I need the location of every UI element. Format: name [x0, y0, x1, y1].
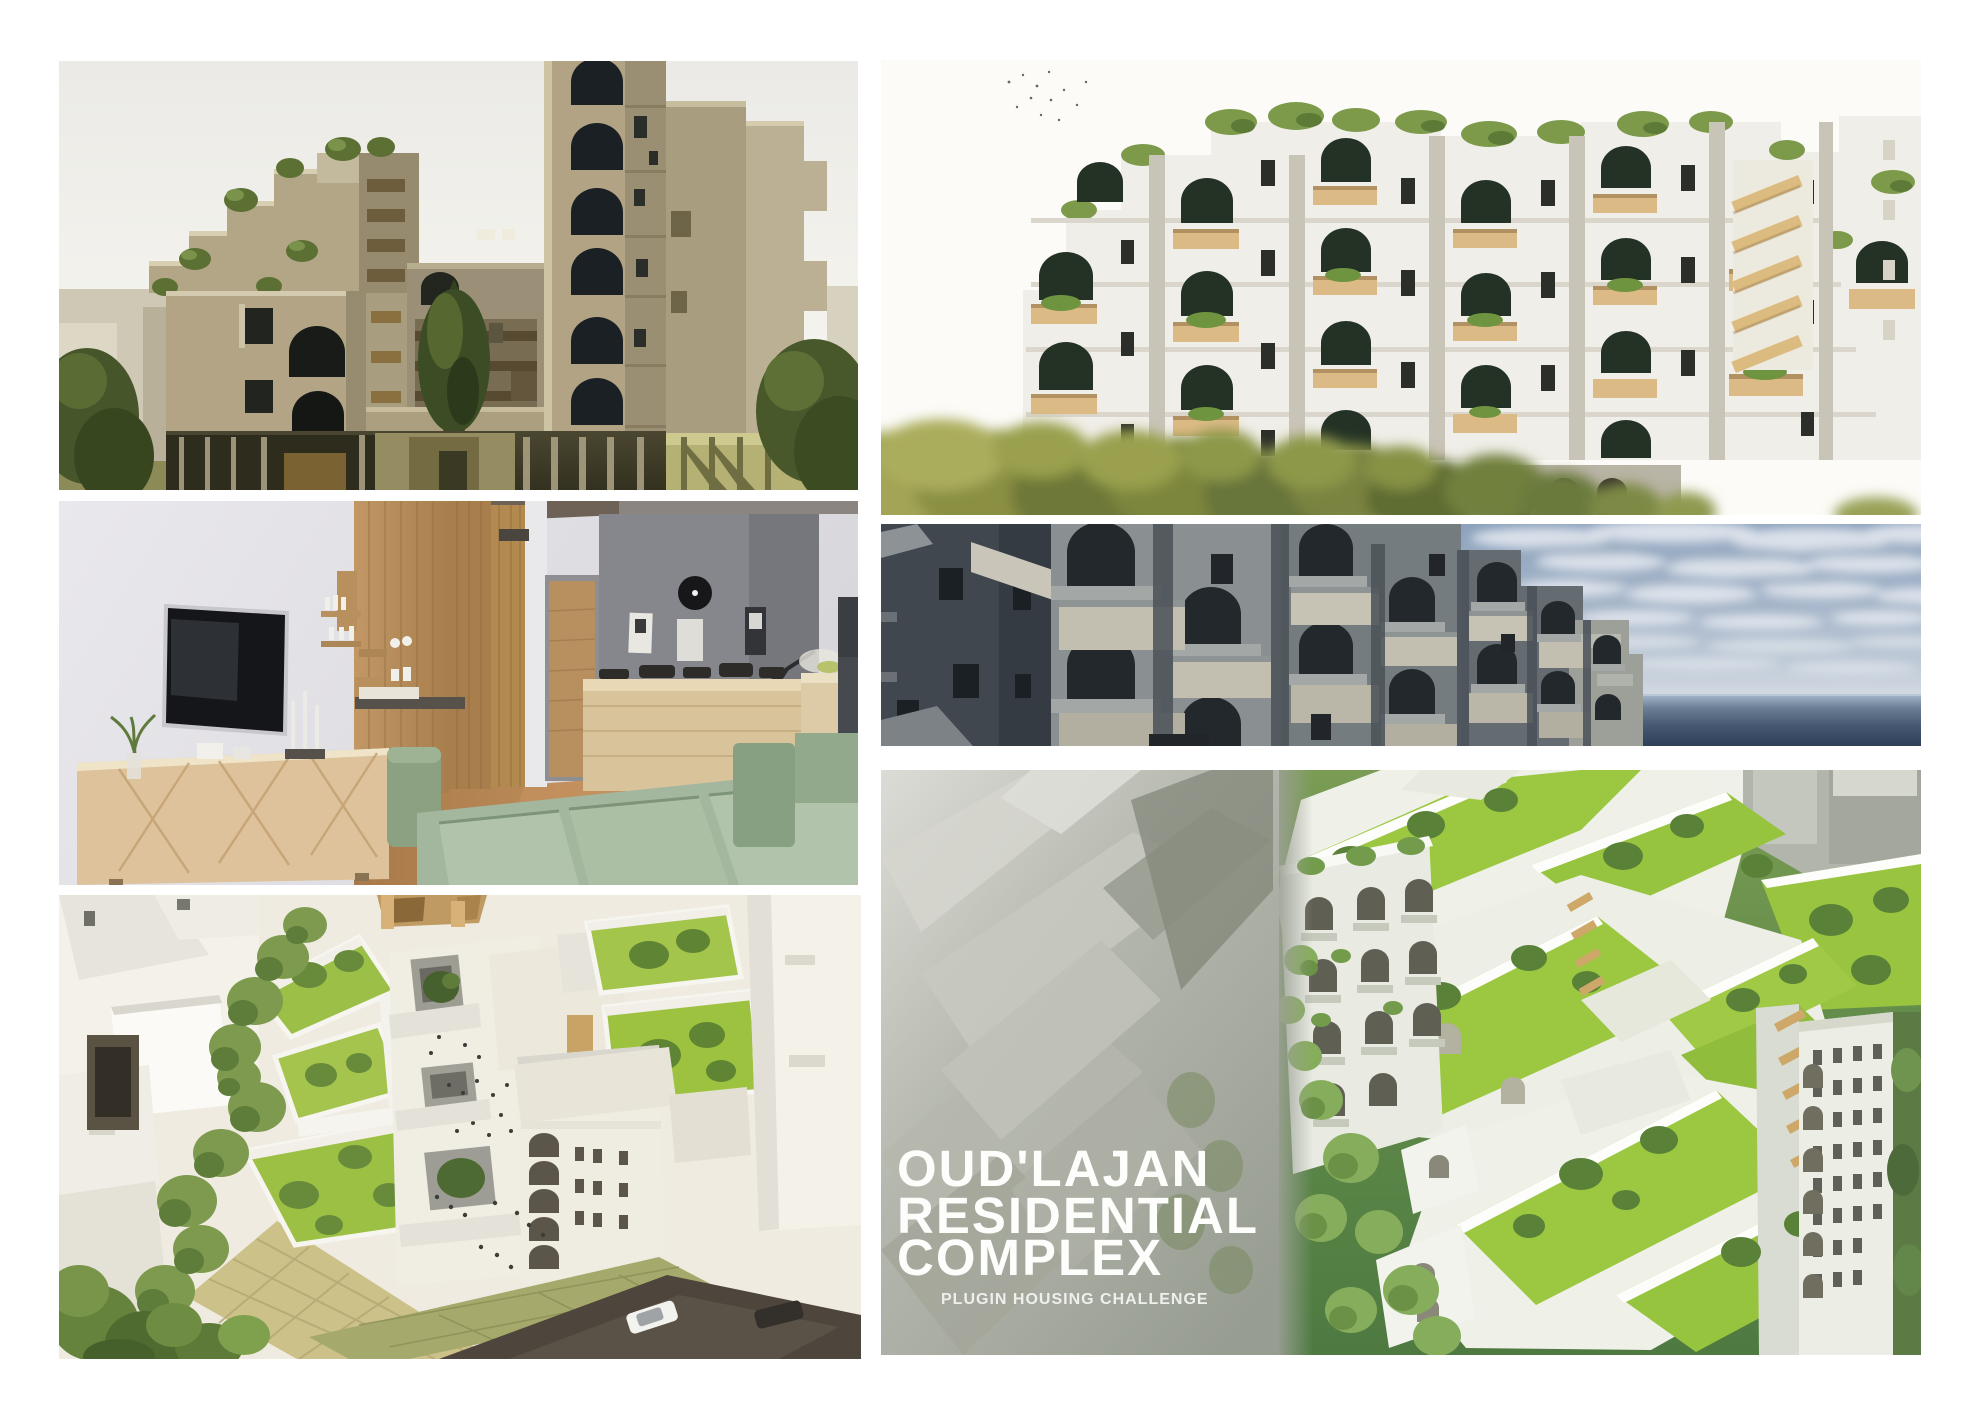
svg-text:PLUGIN HOUSING CHALLENGE: PLUGIN HOUSING CHALLENGE — [941, 1291, 1209, 1308]
svg-text:COMPLEX: COMPLEX — [897, 1229, 1163, 1286]
